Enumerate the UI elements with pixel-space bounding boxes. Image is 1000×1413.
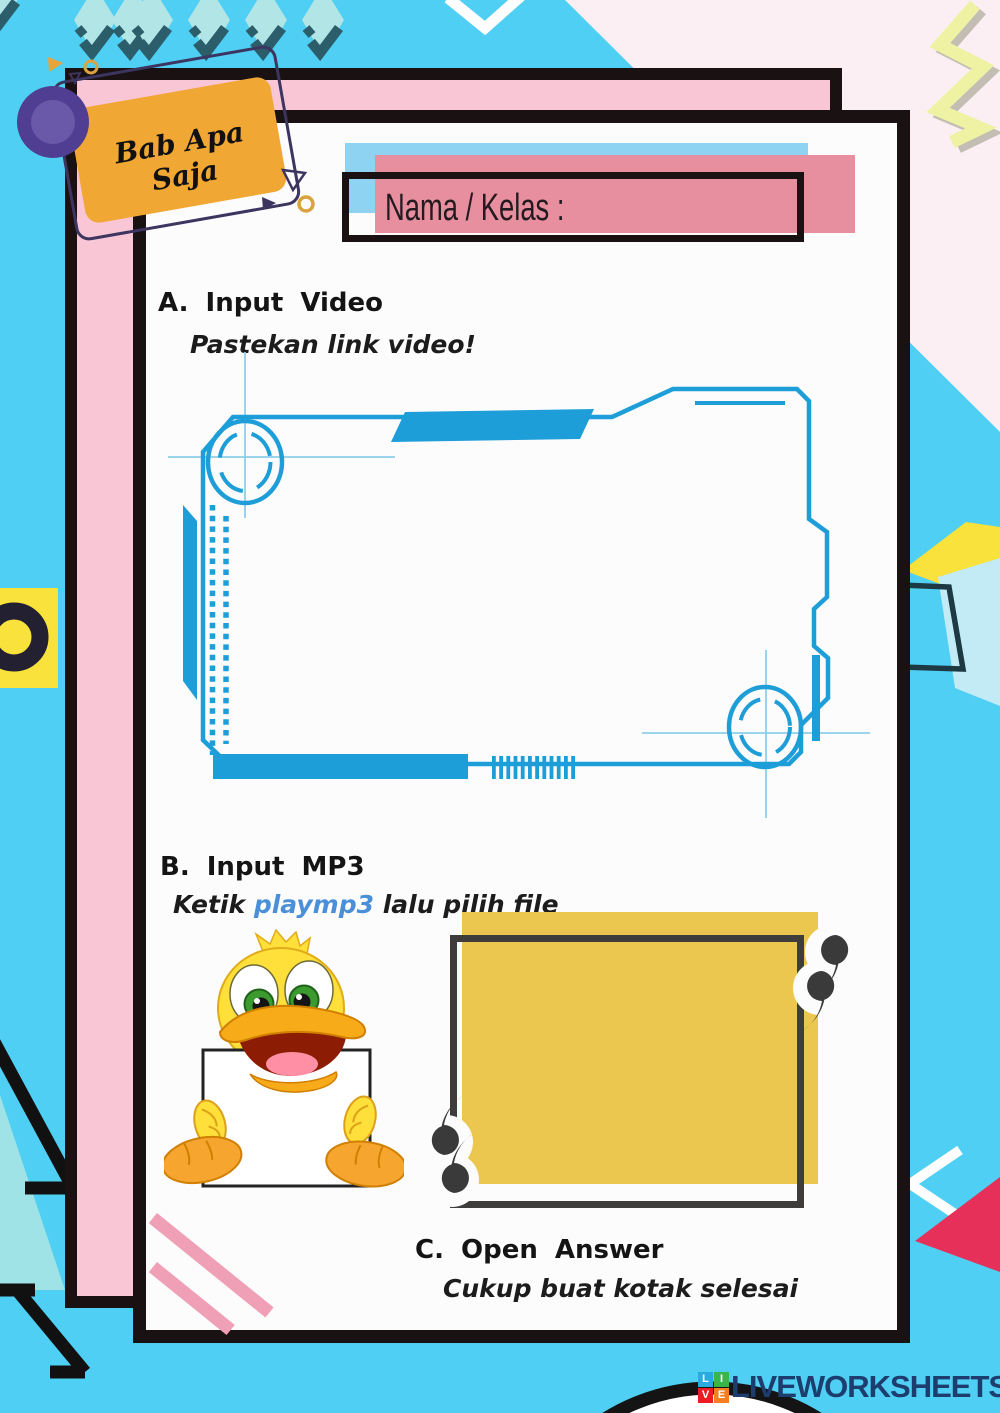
logo-block-l: L: [698, 1372, 713, 1387]
liveworksheets-wordmark: LIVEWORKSHEETS: [731, 1369, 1000, 1405]
subtitle-prefix: Ketik: [173, 890, 254, 919]
duck-mascot-image: [164, 928, 404, 1194]
liveworksheets-logo[interactable]: L I V E LIVEWORKSHEETS: [698, 1369, 998, 1405]
section-c-subtitle: Cukup buat kotak selesai: [443, 1274, 798, 1303]
purple-circle-inner: [31, 100, 75, 144]
frame-left-band: [183, 505, 197, 700]
logo-block-v: V: [698, 1388, 713, 1403]
white-chevron-icon-2: [910, 1150, 960, 1216]
section-a-title: A. Input Video: [158, 288, 383, 318]
check-pattern-icon: [0, 0, 344, 56]
section-c-title: C. Open Answer: [415, 1235, 664, 1265]
section-b-title: B. Input MP3: [160, 852, 365, 882]
white-chevron-icon: [448, 0, 521, 28]
liveworksheets-logo-icon: L I V E: [698, 1372, 729, 1403]
logo-block-e: E: [714, 1388, 729, 1403]
pale-blue-polygon: [938, 558, 1000, 706]
mp3-answer-box[interactable]: [450, 935, 804, 1208]
video-input-frame[interactable]: [150, 340, 890, 840]
worksheet-page: Nama / Kelas : A. Input Video Pastekan l…: [0, 0, 1000, 1413]
keyword-playmp3: playmp3: [254, 890, 374, 919]
frame-bottom-bar: [213, 754, 468, 779]
frame-top-band: [391, 409, 594, 442]
duck-tongue: [266, 1052, 318, 1076]
frame-right-bar: [812, 655, 820, 741]
name-class-label: Nama / Kelas :: [385, 184, 564, 232]
corner-circle-icon: [729, 687, 801, 767]
logo-block-i: I: [714, 1372, 729, 1387]
